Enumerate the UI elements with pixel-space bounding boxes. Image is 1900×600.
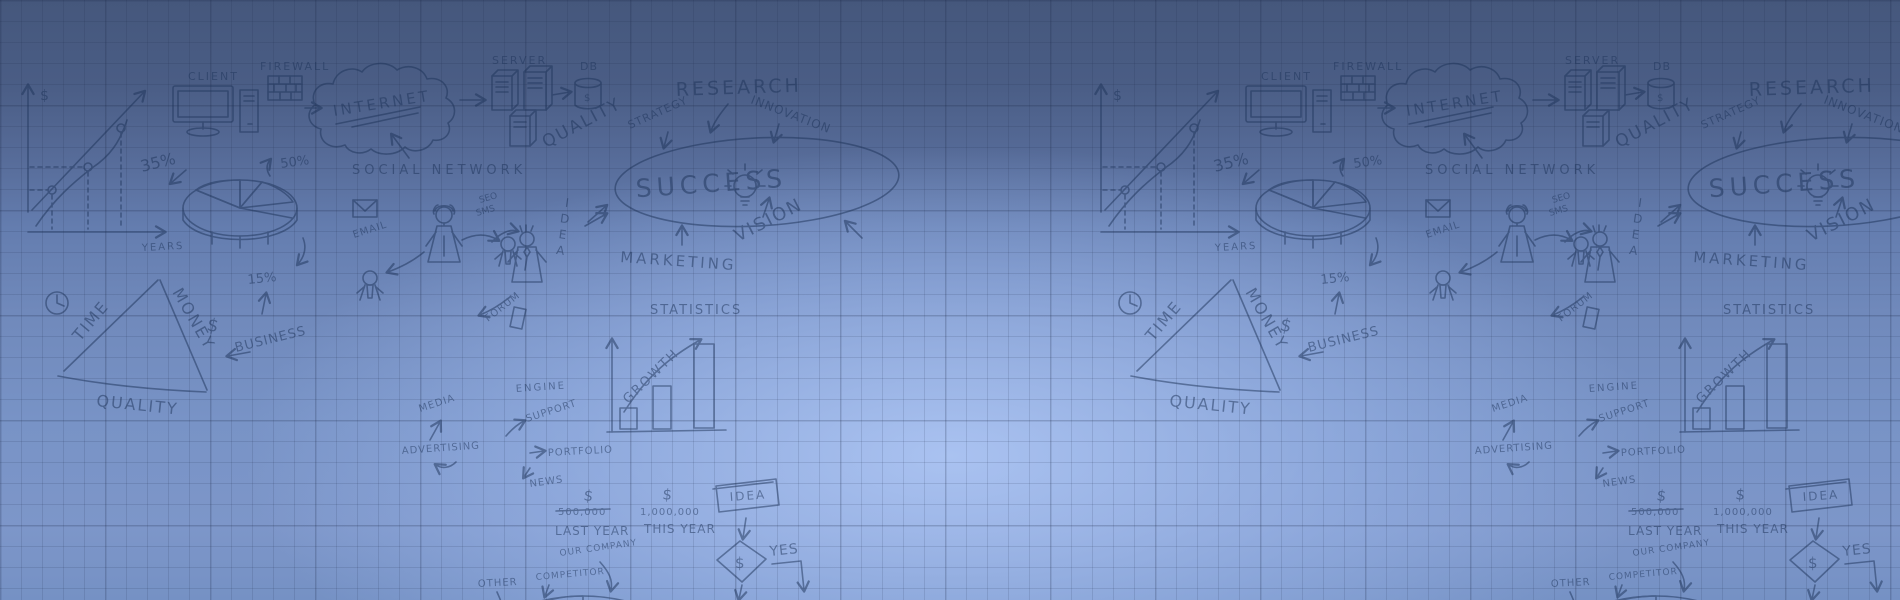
hero-banner: $ YEARS 35% 50% — [0, 0, 1900, 600]
doodle-tile-left — [28, 54, 901, 600]
doodle-tile-right — [1101, 54, 1900, 600]
doodle-layer: $ YEARS 35% 50% — [0, 0, 1900, 600]
